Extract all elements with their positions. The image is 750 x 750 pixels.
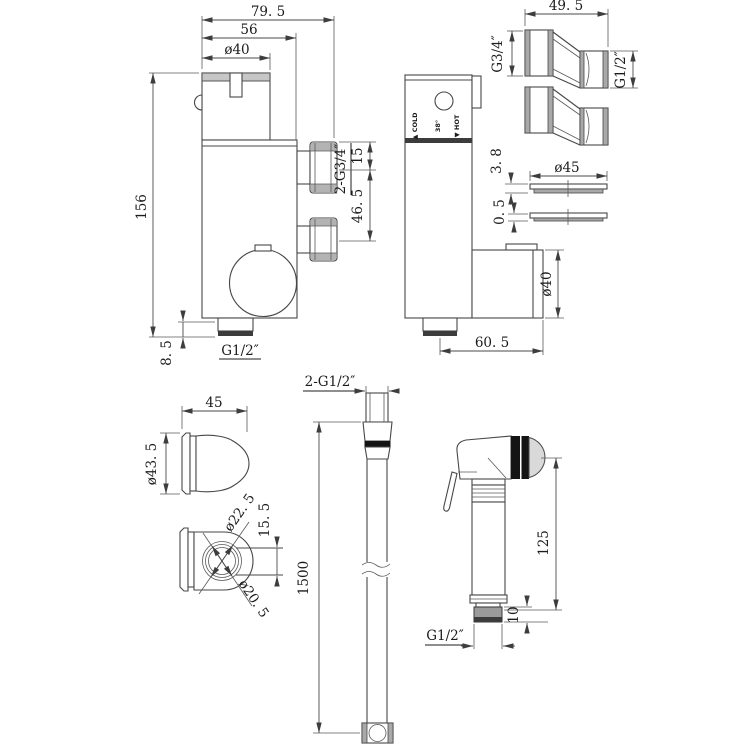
sprayer-view: 125 10 G1/2″ xyxy=(425,436,562,649)
label-cold: ▲ COLD xyxy=(411,112,419,140)
dim-bracket-bore-outer: ø22. 5 xyxy=(221,491,258,535)
bracket-dome xyxy=(196,435,249,492)
adapters-view: 49. 5 G3/4″ G1/2″ xyxy=(490,0,638,145)
side-knob xyxy=(472,250,543,318)
dim-disc-diameter: ø45 xyxy=(554,160,579,176)
dim-side-knob-dia: ø40 xyxy=(539,271,555,296)
label-front-outlet-thread: G1/2″ xyxy=(221,343,259,359)
side-outlet xyxy=(423,318,457,331)
dim-sprayer-thread-length: 10 xyxy=(506,606,522,623)
dim-front-knob-dia: ø40 xyxy=(224,42,249,58)
sprayer-trigger xyxy=(444,472,457,511)
dim-sprayer-height: 125 xyxy=(536,530,552,556)
dim-front-inlet-top: 15 xyxy=(350,147,366,164)
dim-front-inlet-spacing: 46. 5 xyxy=(350,189,366,223)
sprayer-handle xyxy=(472,502,505,595)
label-hose-threads: 2-G1/2″ xyxy=(305,374,356,390)
front-outlet xyxy=(218,318,253,331)
sprayer-nozzle-ring xyxy=(511,436,520,479)
adapter-1 xyxy=(525,30,608,88)
bracket-side-view: 45 ø43. 5 xyxy=(144,395,249,494)
bracket-bottom-view: ø22. 5 ø20. 5 15. 5 xyxy=(180,491,283,621)
hose-top-fitting xyxy=(366,393,388,422)
valve-front-view: 79. 5 56 ø40 156 8. 5 G1/2″ 2-G3/4″ 15 xyxy=(134,4,376,366)
disc-2 xyxy=(530,213,607,218)
label-38deg: 38° xyxy=(434,120,442,132)
side-body xyxy=(405,75,472,318)
cad-drawing-sheet: 79. 5 56 ø40 156 8. 5 G1/2″ 2-G3/4″ 15 xyxy=(0,0,750,750)
dim-bracket-depth: 45 xyxy=(205,395,222,411)
cad-drawing: 79. 5 56 ø40 156 8. 5 G1/2″ 2-G3/4″ 15 xyxy=(0,0,750,750)
sprayer-head xyxy=(457,436,511,479)
discs-view: ø45 3. 8 0. 5 xyxy=(489,148,607,231)
dim-disc-thickness-top: 3. 8 xyxy=(489,148,505,174)
adapter-2 xyxy=(525,87,608,145)
front-diverter-knob xyxy=(230,250,297,317)
dim-front-outlet-length: 8. 5 xyxy=(159,340,175,366)
dim-bracket-bore-inner: ø20. 5 xyxy=(235,577,272,621)
dim-front-height: 156 xyxy=(134,194,150,220)
dim-adapter-length: 49. 5 xyxy=(549,0,583,14)
bracket-flange xyxy=(182,433,190,494)
dim-bracket-diameter: ø43. 5 xyxy=(144,443,160,485)
front-knob-slot xyxy=(230,73,242,97)
side-override-button xyxy=(435,92,453,110)
dim-bracket-slot: 15. 5 xyxy=(257,503,273,537)
front-safety-button xyxy=(195,95,203,110)
dim-side-depth: 60. 5 xyxy=(475,335,509,351)
dim-hose-length: 1500 xyxy=(296,561,312,595)
hose-view: 2-G1/2″ 1500 xyxy=(296,374,397,743)
dim-front-width-body: 56 xyxy=(240,22,257,38)
label-front-inlet-thread: 2-G3/4″ xyxy=(333,144,349,195)
disc-1 xyxy=(530,184,607,189)
label-adapter-thread-large: G3/4″ xyxy=(490,35,506,73)
label-adapter-thread-small: G1/2″ xyxy=(613,51,629,89)
label-hot: ▼ HOT xyxy=(453,114,461,137)
dim-disc-thickness-bottom: 0. 5 xyxy=(492,199,508,225)
label-sprayer-thread: G1/2″ xyxy=(426,628,464,644)
dim-front-width-total: 79. 5 xyxy=(251,4,285,20)
